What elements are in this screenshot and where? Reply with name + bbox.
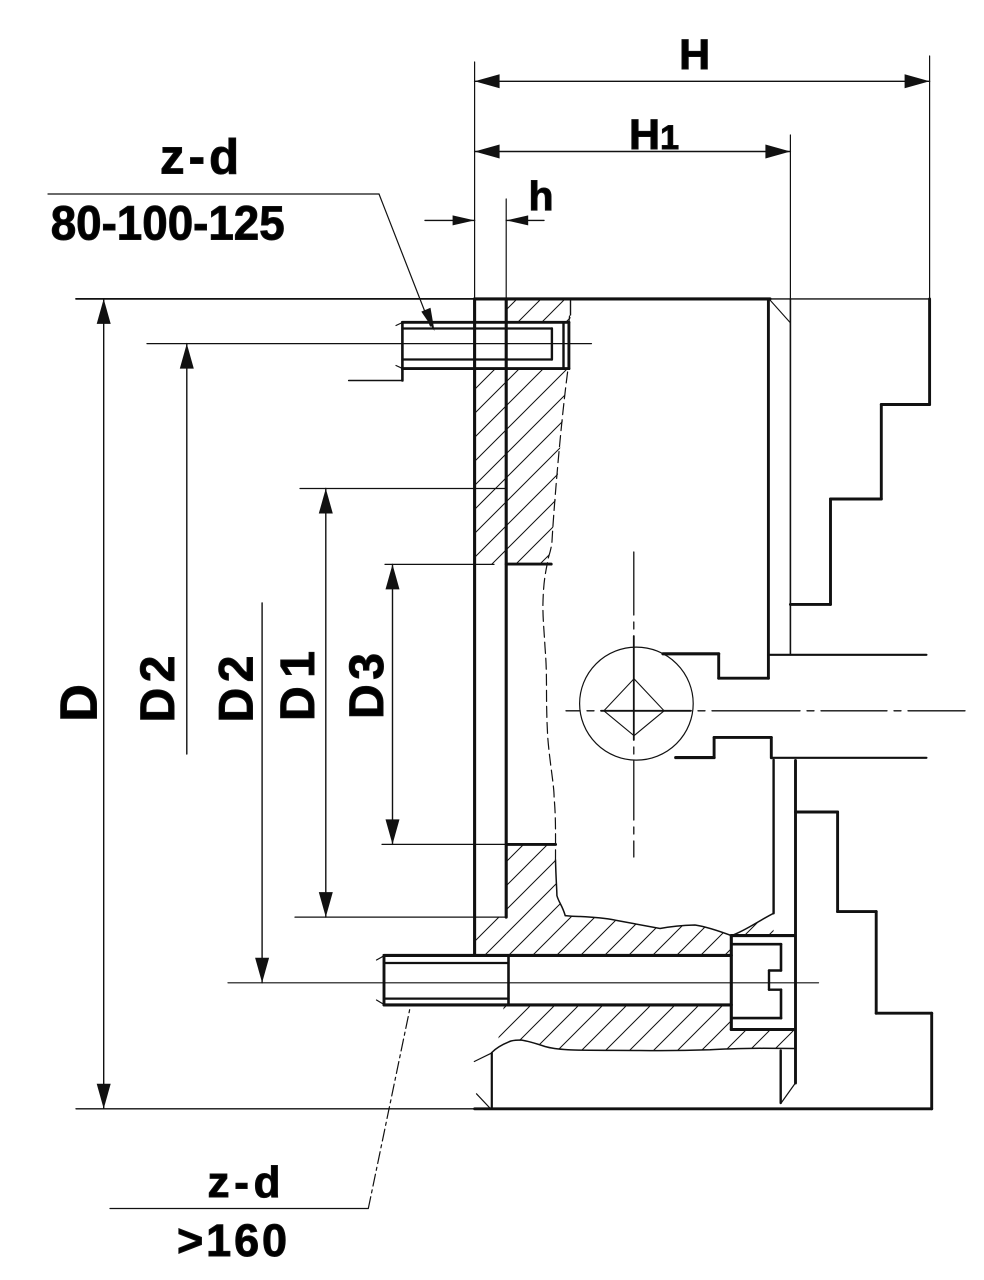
svg-text:D2: D2 xyxy=(211,656,264,723)
svg-text:h: h xyxy=(528,173,553,219)
svg-text:D2: D2 xyxy=(132,656,185,723)
svg-text:D: D xyxy=(51,684,109,722)
svg-text:D3: D3 xyxy=(341,653,394,719)
svg-text:H1: H1 xyxy=(629,111,679,159)
svg-text:z-d: z-d xyxy=(208,1158,281,1207)
svg-text:80-100-125: 80-100-125 xyxy=(51,197,285,250)
svg-text:D1: D1 xyxy=(272,651,325,721)
svg-text:z-d: z-d xyxy=(160,130,239,184)
svg-text:>160: >160 xyxy=(177,1215,287,1266)
svg-text:H: H xyxy=(679,31,710,79)
